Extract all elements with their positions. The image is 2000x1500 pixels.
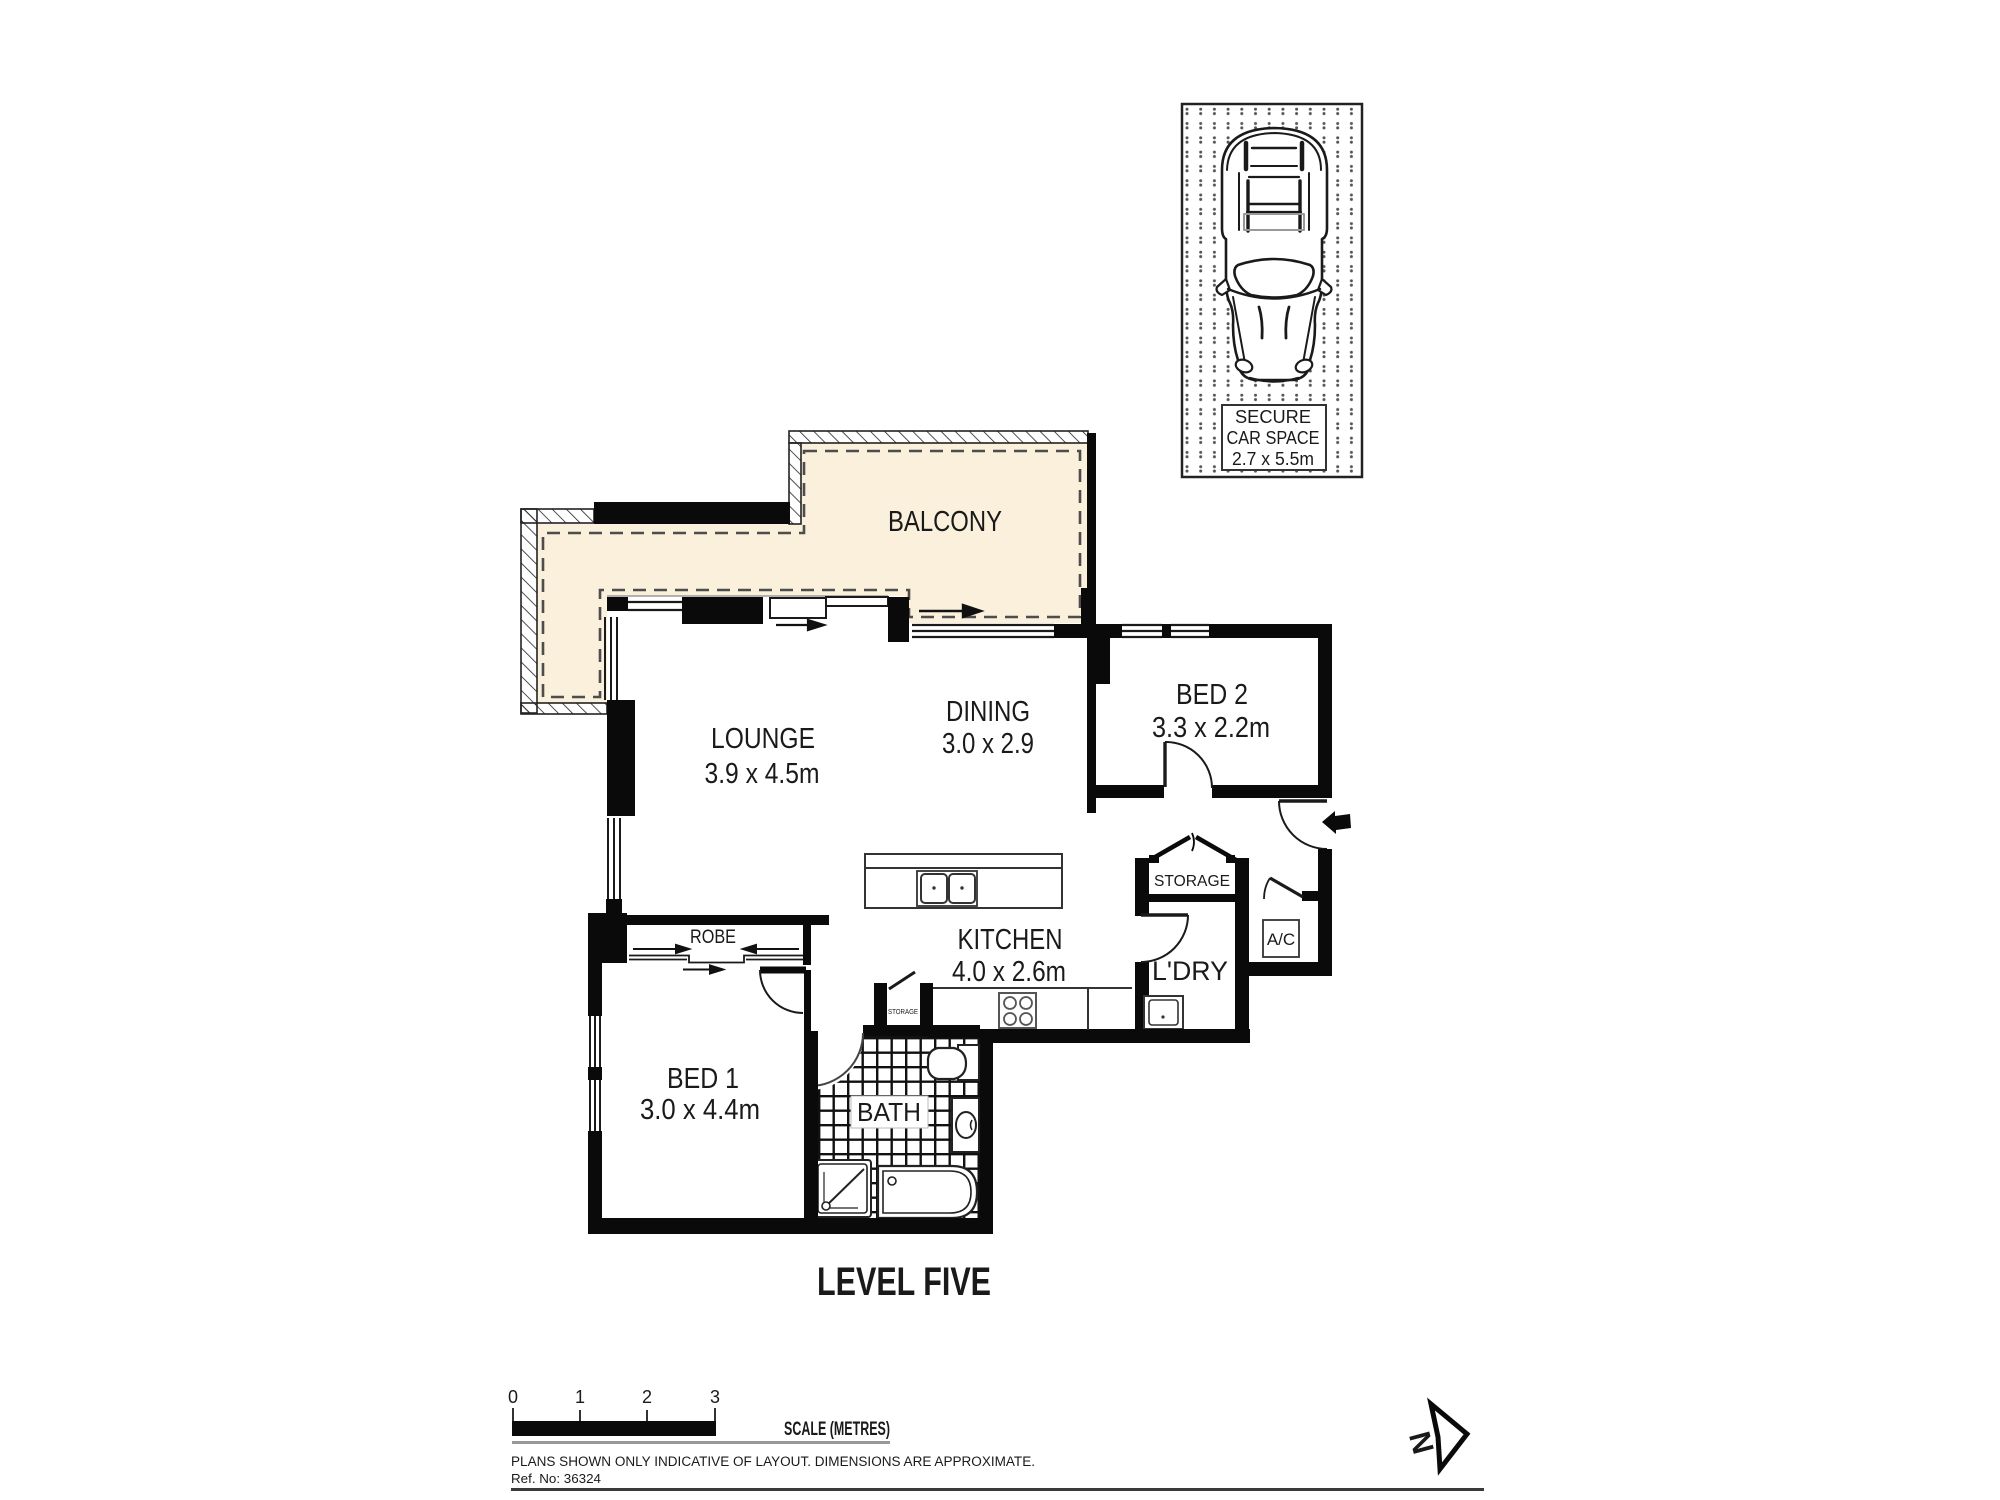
svg-text:CAR SPACE: CAR SPACE [1227, 428, 1320, 448]
svg-text:DINING: DINING [946, 696, 1030, 728]
svg-text:BATH: BATH [857, 1097, 921, 1127]
svg-text:STORAGE: STORAGE [1154, 873, 1230, 890]
svg-text:2.7 x 5.5m: 2.7 x 5.5m [1232, 449, 1314, 469]
svg-text:ROBE: ROBE [690, 927, 736, 948]
svg-text:BED 2: BED 2 [1176, 679, 1248, 711]
svg-text:3.0 x 2.9: 3.0 x 2.9 [942, 728, 1034, 760]
svg-text:1: 1 [575, 1387, 585, 1407]
svg-text:4.0 x 2.6m: 4.0 x 2.6m [952, 956, 1066, 988]
svg-text:2: 2 [642, 1387, 652, 1407]
svg-text:PLANS SHOWN ONLY INDICATIVE OF: PLANS SHOWN ONLY INDICATIVE OF LAYOUT. D… [511, 1454, 1035, 1469]
svg-text:3: 3 [710, 1387, 720, 1407]
svg-text:LEVEL FIVE: LEVEL FIVE [817, 1260, 991, 1304]
svg-text:SECURE: SECURE [1235, 407, 1311, 427]
svg-text:BED 1: BED 1 [667, 1063, 739, 1095]
svg-text:STORAGE: STORAGE [888, 1009, 918, 1016]
svg-text:3.0 x 4.4m: 3.0 x 4.4m [640, 1094, 760, 1126]
svg-text:3.3 x 2.2m: 3.3 x 2.2m [1152, 712, 1270, 744]
svg-text:3.9 x 4.5m: 3.9 x 4.5m [705, 758, 820, 790]
svg-text:Ref. No: 36324: Ref. No: 36324 [511, 1472, 601, 1486]
svg-text:SCALE (METRES): SCALE (METRES) [784, 1419, 890, 1440]
svg-text:KITCHEN: KITCHEN [958, 924, 1063, 956]
svg-text:0: 0 [508, 1387, 518, 1407]
svg-text:L'DRY: L'DRY [1152, 956, 1228, 986]
svg-text:BALCONY: BALCONY [888, 506, 1002, 538]
svg-text:LOUNGE: LOUNGE [711, 723, 815, 755]
svg-text:A/C: A/C [1267, 930, 1295, 949]
